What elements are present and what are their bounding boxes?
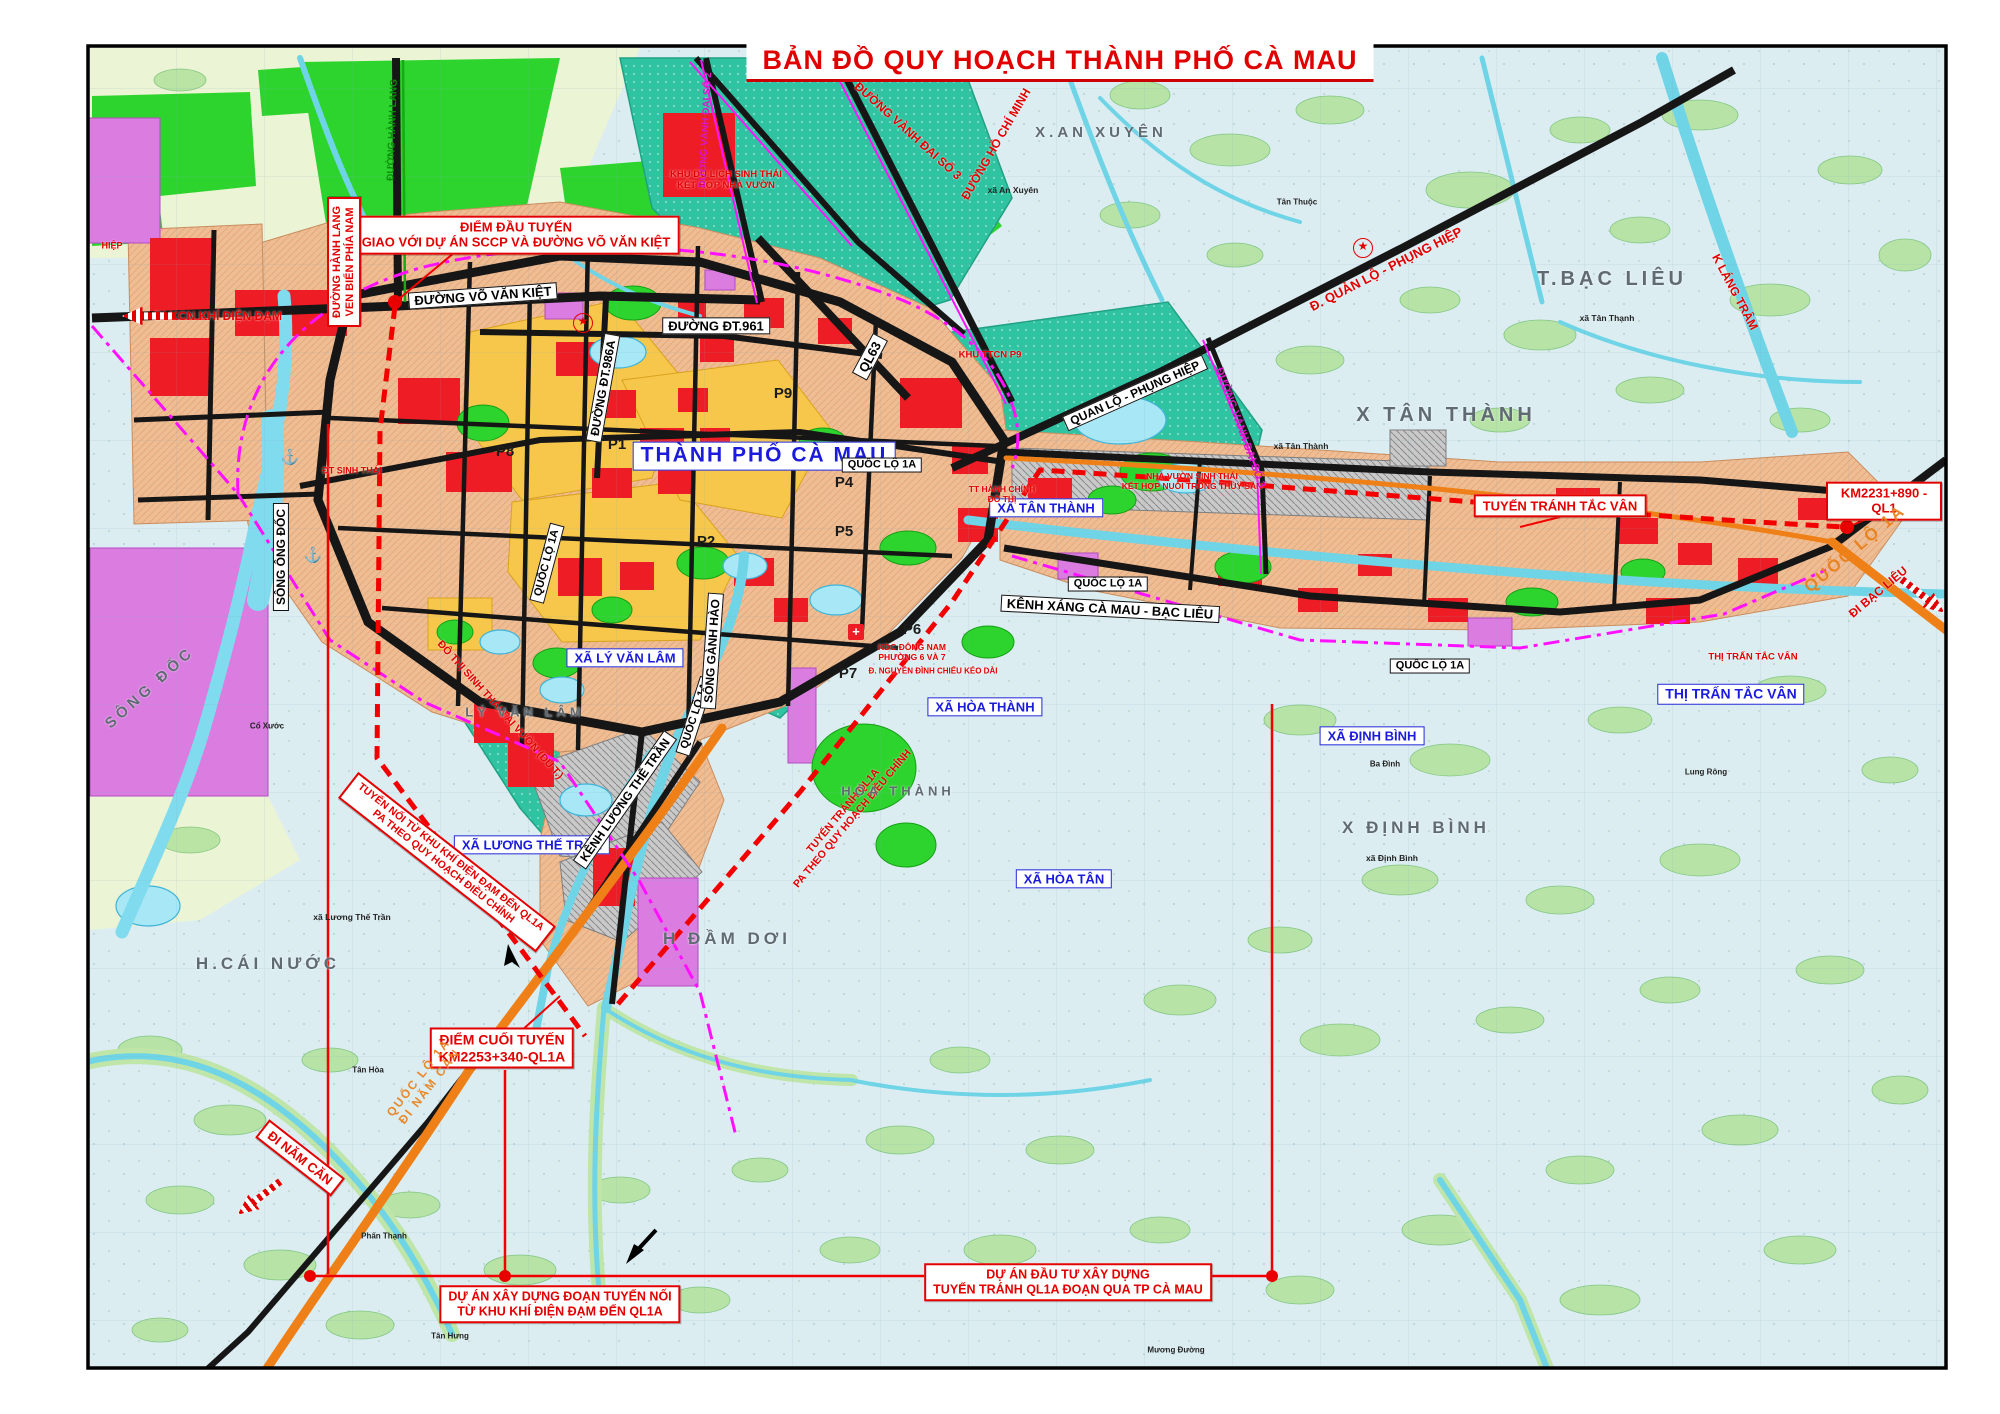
roadbox-quoc-lo-1a-center: QUỐC LỘ 1A	[842, 458, 922, 473]
roadbox-dt986a: ĐƯỜNG ĐT.986A	[586, 333, 621, 443]
bluebox-thi-tran-tac-van: THỊ TRẤN TẮC VÂN	[1657, 684, 1804, 705]
small-phan-thanh: Phấn Thạnh	[361, 1231, 407, 1240]
ward-p4: P4	[835, 474, 853, 492]
page-title: BẢN ĐỒ QUY HOẠCH THÀNH PHỐ CÀ MAU	[746, 44, 1373, 82]
ward-p1: P1	[608, 436, 626, 454]
small-tan-thuoc: Tân Thuộc	[1277, 197, 1317, 206]
rednote-thi-tran-tac-van: THỊ TRẤN TẮC VÂN	[1708, 651, 1797, 662]
roadbox-dt961: ĐƯỜNG ĐT.961	[662, 317, 770, 334]
roadbox-ql63: QL63	[852, 333, 888, 380]
gray-x-an-xuyen: X.AN XUYÊN	[1035, 124, 1167, 142]
callout-tuyen-tranh-tac-van: TUYẾN TRÁNH TẮC VÂN	[1474, 494, 1647, 517]
roadbox-quan-lo-phung-hiep: QUAN LỘ - PHỤNG HIỆP	[1062, 355, 1208, 432]
rednote-khu-du-lich: KHU DU LỊCH SINH THÁI KẾT HỢP NHÀ VƯỜN	[670, 169, 782, 191]
callout-di-nam-can: ĐI NĂM CĂN	[255, 1119, 345, 1196]
label-layer: ĐIỂM ĐẦU TUYẾN GIAO VỚI DỰ ÁN SCCP VÀ ĐƯ…	[0, 0, 2000, 1414]
gray-x-dinh-binh: X ĐỊNH BÌNH	[1342, 818, 1490, 838]
small-xa-an-xuyen: xã An Xuyên	[988, 185, 1039, 195]
roadbox-kenh-luong-the-tran: KÊNH LƯƠNG THẾ TRẦN	[573, 730, 677, 869]
ward-p5: P5	[835, 523, 853, 541]
gray-hoa-thanh: HÒA THÀNH	[841, 783, 955, 798]
ward-p8: P8	[496, 443, 514, 461]
gray-h-dam-doi: H ĐẦM DƠI	[663, 929, 791, 949]
small-xa-tan-thanh-2: xã Tân Thạnh	[1580, 313, 1635, 323]
roadbox-song-ong-doc: SÔNG ÔNG ĐỐC	[273, 503, 289, 611]
rednote-vanh-dai-3-nw: ĐƯỜNG VÀNH ĐAI SỐ 3	[852, 79, 965, 182]
gray-h-cai-nuoc: H.CÁI NƯỚC	[196, 954, 340, 974]
rednote-khu-ttcn-p9: KHU TTCN P9	[959, 349, 1022, 360]
callout-tuyen-noi-pa: TUYẾN NỐI TỪ KHU KHÍ ĐIỆN ĐẠM ĐẾN QL1A P…	[338, 772, 556, 952]
orange-ql1a-di-nam-can: QUỐC LỘ 1A ĐI NĂM CĂN	[384, 1036, 465, 1128]
roadbox-quoc-lo-1a-tac-van: QUỐC LỘ 1A	[1390, 659, 1470, 674]
roadbox-vo-van-kiet: ĐƯỜNG VÕ VĂN KIỆT	[408, 282, 558, 310]
small-co-xuoc: Cổ Xước	[250, 721, 284, 730]
star-icon-1: ★	[1353, 238, 1373, 258]
rednote-kdc-dong-nam: KDC ĐÔNG NAM PHƯỜNG 6 VÀ 7	[878, 642, 946, 662]
green-hanh-lang: ĐƯỜNG HÀNH LANG	[385, 79, 400, 181]
bluebox-xa-dinh-binh: XÃ ĐỊNH BÌNH	[1320, 726, 1425, 745]
rednote-tuyen-tranh-pa: TUYẾN TRÁNH QL1A PA THEO QUY HOẠCH ĐIỀU …	[782, 739, 914, 890]
gray-t-bac-lieu: T.BẠC LIÊU	[1537, 268, 1687, 292]
rednote-dt-sinh-thai: ĐT SINH THÁI	[322, 466, 382, 477]
ward-p7: P7	[839, 665, 857, 683]
bluebox-xa-hoa-thanh: XÃ HÒA THÀNH	[927, 697, 1042, 716]
rednote-k-lang-tram: K LÁNG TRÂM	[1709, 252, 1761, 333]
ward-p6: P6	[903, 621, 921, 639]
small-ba-dinh: Ba Đình	[1370, 759, 1400, 768]
anchor-icon-1: ⚓	[281, 449, 300, 467]
hospital-icon: +	[848, 624, 864, 640]
small-tan-hoa: Tân Hòa	[352, 1065, 384, 1074]
star-icon-2: ★	[573, 313, 593, 333]
small-xa-luong-the-tran: xã Lương Thế Trần	[313, 912, 390, 922]
rednote-tt-hanh-chinh: TT HÀNH CHÍNH ĐÔ THỊ	[969, 484, 1036, 504]
rednote-di-bac-lieu: ĐI BẠC LIÊU	[1846, 563, 1910, 620]
rednote-quan-lo: Đ. QUẢN LỘ - PHỤNG HIỆP	[1307, 224, 1465, 314]
ward-p2: P2	[697, 533, 715, 551]
callout-du-an-tuyen-tranh: DỰ ÁN ĐẦU TƯ XÂY DỰNG TUYẾN TRÁNH QL1A Đ…	[924, 1263, 1212, 1301]
bluebox-xa-ly-van-lam: XÃ LÝ VĂN LÂM	[566, 648, 683, 667]
ward-p9: P9	[774, 385, 792, 403]
callout-hanh-lang-ven-bien: ĐƯỜNG HÀNH LANG VEN BIỂN PHÍA NAM	[327, 197, 361, 327]
roadbox-kenh-xang: KÊNH XÁNG CÀ MAU - BẠC LIÊU	[1000, 595, 1219, 624]
rednote-nguyen-dinh-chieu: Đ. NGUYỄN ĐÌNH CHIỂU KÉO DÀI	[869, 666, 998, 675]
planning-map: BẢN ĐỒ QUY HOẠCH THÀNH PHỐ CÀ MAU ĐIỂM Đ…	[0, 0, 2000, 1414]
roadbox-quoc-lo-1a-mid: QUỐC LỘ 1A	[1068, 577, 1148, 592]
gray-ly-van-lam: LÝ VĂN LÂM	[465, 704, 584, 719]
callout-diem-dau: ĐIỂM ĐẦU TUYẾN GIAO VỚI DỰ ÁN SCCP VÀ ĐƯ…	[353, 216, 680, 255]
gray-song-doc: SÔNG ĐỐC	[102, 643, 198, 732]
small-xa-dinh-binh: xã Định Bình	[1366, 853, 1418, 863]
rednote-nha-vuon: NHÀ VƯỜN SINH THÁI KẾT HỢP NUÔI TRỒNG TH…	[1122, 471, 1263, 491]
callout-du-an-tuyen-noi: DỰ ÁN XÂY DỰNG ĐOẠN TUYẾN NỐI TỪ KHU KHÍ…	[439, 1285, 680, 1323]
small-xa-tan-thanh: xã Tân Thành	[1274, 441, 1329, 451]
roadbox-song-ganh-hao: SÔNG GÀNH HÀO	[700, 593, 724, 710]
rednote-hiep: HIỆP	[101, 241, 122, 252]
bluebox-xa-hoa-tan: XÃ HÒA TÂN	[1016, 869, 1112, 888]
small-muong-duong: Mương Đường	[1147, 1345, 1204, 1354]
small-tan-hung: Tân Hưng	[431, 1331, 469, 1340]
gray-x-tan-thanh: X TÂN THÀNH	[1356, 404, 1536, 428]
anchor-icon-2: ⚓	[304, 547, 323, 565]
small-lung-rong: Lung Rông	[1685, 767, 1727, 776]
roadbox-quoc-lo-1a-city-north: QUỐC LỘ 1A	[529, 522, 564, 604]
